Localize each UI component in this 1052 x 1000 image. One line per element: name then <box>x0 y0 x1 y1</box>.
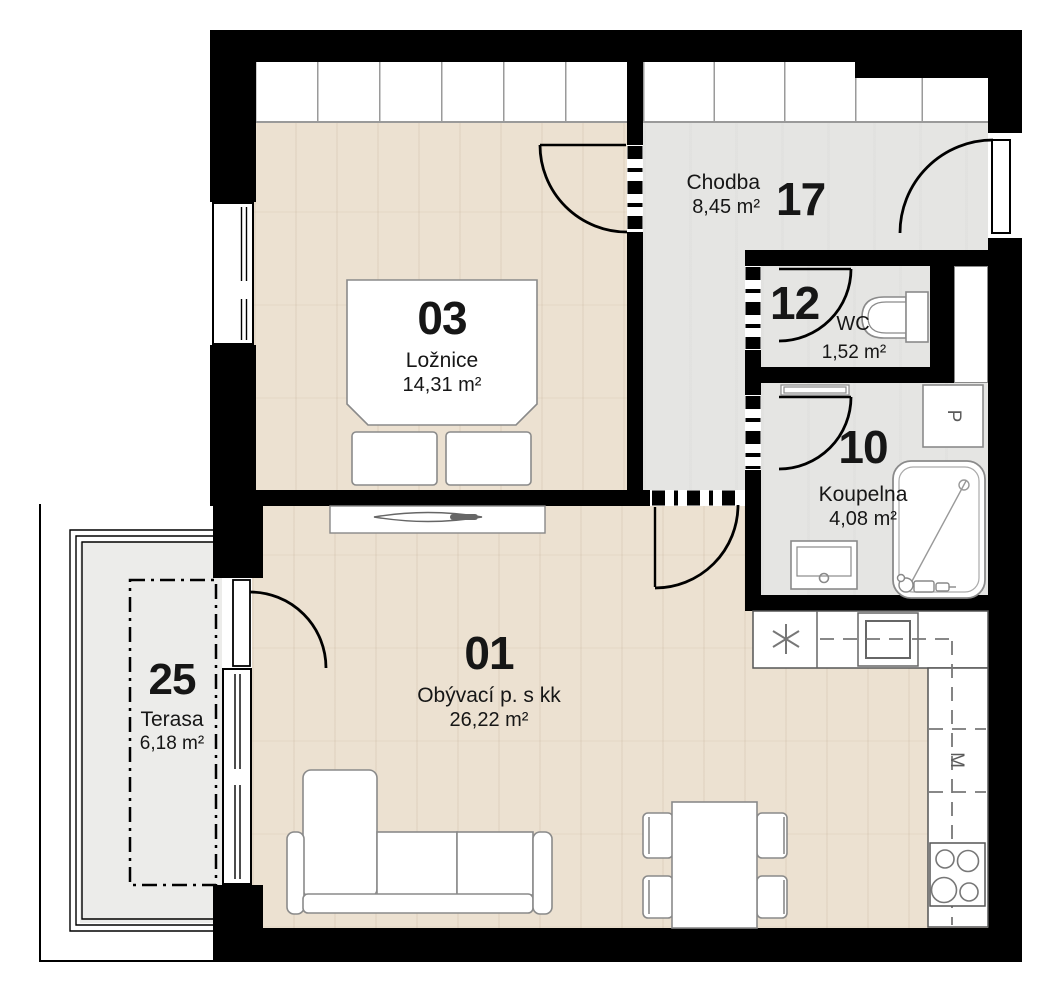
installation-shaft <box>954 266 988 383</box>
room-name: Chodba <box>645 172 760 194</box>
room-number: 25 <box>107 658 237 702</box>
entrance-door-opening <box>988 133 1022 238</box>
room-area: 6,18 m² <box>107 734 237 754</box>
wall <box>745 250 988 266</box>
corridor-floor <box>643 252 745 492</box>
room-area: 14,31 m² <box>332 375 552 396</box>
wall <box>210 345 256 492</box>
room-name: Ložnice <box>332 350 552 372</box>
wc-door-opening <box>745 266 761 350</box>
bedroom-wardrobe <box>255 62 627 123</box>
room-area-wc: 1,52 m² <box>810 343 898 363</box>
room-number-wc: 12 <box>770 280 819 326</box>
bedroom-window <box>212 202 254 345</box>
wall <box>627 232 643 492</box>
room-area: 8,45 m² <box>645 197 760 218</box>
dishwasher-label: M <box>942 746 970 774</box>
washing-machine-label: P <box>939 402 967 430</box>
room-number: 01 <box>379 630 599 676</box>
room-name-wc: WC <box>828 314 878 335</box>
bathroom-door-opening <box>745 395 761 470</box>
wall <box>988 238 1022 962</box>
room-name: Terasa <box>107 709 237 731</box>
wall <box>930 266 954 383</box>
wall <box>210 490 652 506</box>
room-number: 10 <box>788 424 938 470</box>
terrace-door-opening <box>222 578 252 668</box>
room-label-koupelna: 10 Koupelna 4,08 m² <box>788 424 938 530</box>
wall <box>988 30 1022 133</box>
wall <box>627 62 643 145</box>
wall <box>213 928 1022 962</box>
wall <box>213 490 263 578</box>
room-area: 26,22 m² <box>379 710 599 731</box>
room-number: 03 <box>332 295 552 341</box>
wall <box>745 595 1022 611</box>
wall <box>745 470 761 611</box>
bedroom-floor <box>254 62 627 492</box>
floor-plan: 03 Ložnice 14,31 m² Chodba 8,45 m² 17 12… <box>0 0 1052 1000</box>
wall <box>210 30 256 202</box>
bedroom-door-opening <box>627 145 643 232</box>
room-label-terasa: 25 Terasa 6,18 m² <box>107 658 237 754</box>
room-name: Koupelna <box>788 484 938 506</box>
wall <box>642 30 1022 62</box>
room-number-chodba: 17 <box>776 176 825 222</box>
room-label-obyvaci: 01 Obývací p. s kk 26,22 m² <box>379 630 599 731</box>
room-label-chodba: Chodba 8,45 m² <box>645 172 760 218</box>
room-label-loznice: 03 Ložnice 14,31 m² <box>332 295 552 396</box>
room-name: Obývací p. s kk <box>379 685 599 707</box>
wall <box>210 30 642 62</box>
hallway-wardrobe-right <box>855 77 988 123</box>
hallway-wardrobe-left <box>643 62 855 123</box>
wall <box>745 367 930 383</box>
corridor-living-opening <box>650 490 745 506</box>
room-area: 4,08 m² <box>788 509 938 530</box>
